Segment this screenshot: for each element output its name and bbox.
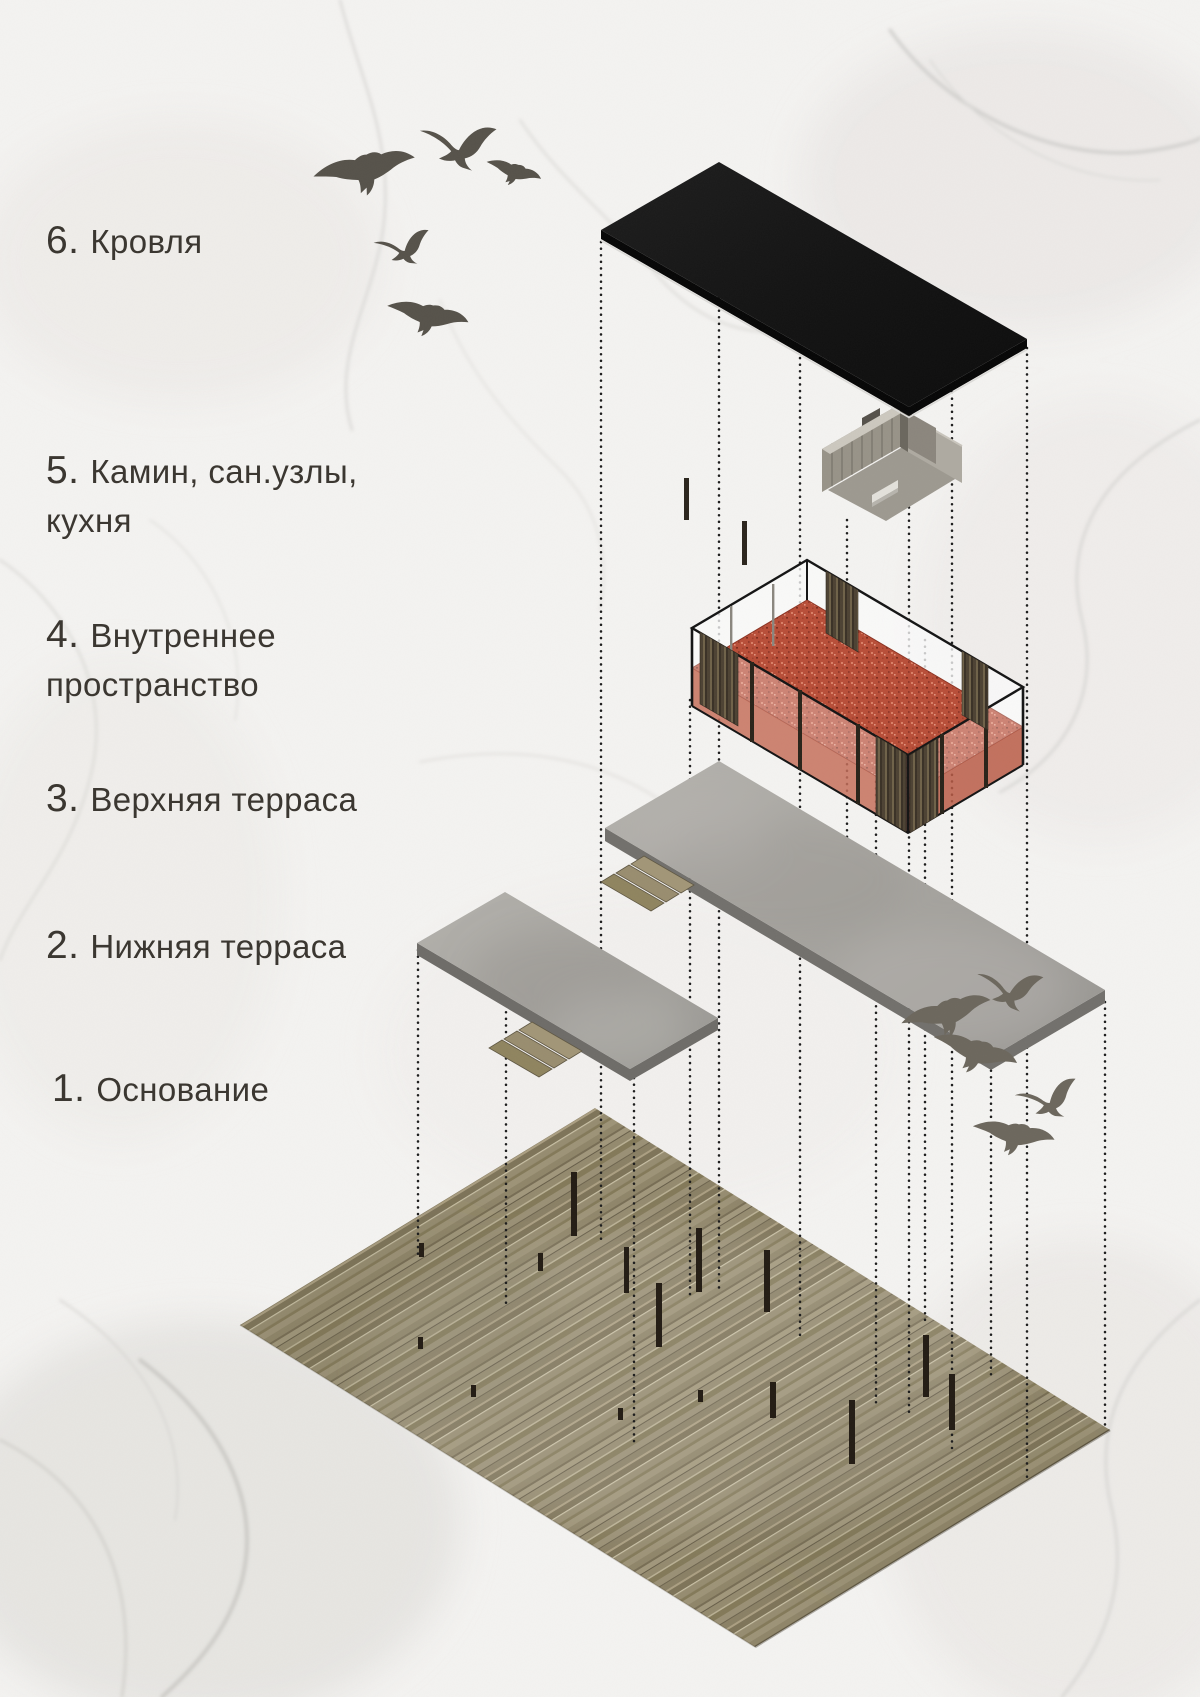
paper-grain xyxy=(0,0,1200,1697)
poster: 6.Кровля 5.Камин, сан.узлы, кухня 4.Внут… xyxy=(0,0,1200,1697)
exploded-axonometric-diagram xyxy=(0,0,1200,1697)
